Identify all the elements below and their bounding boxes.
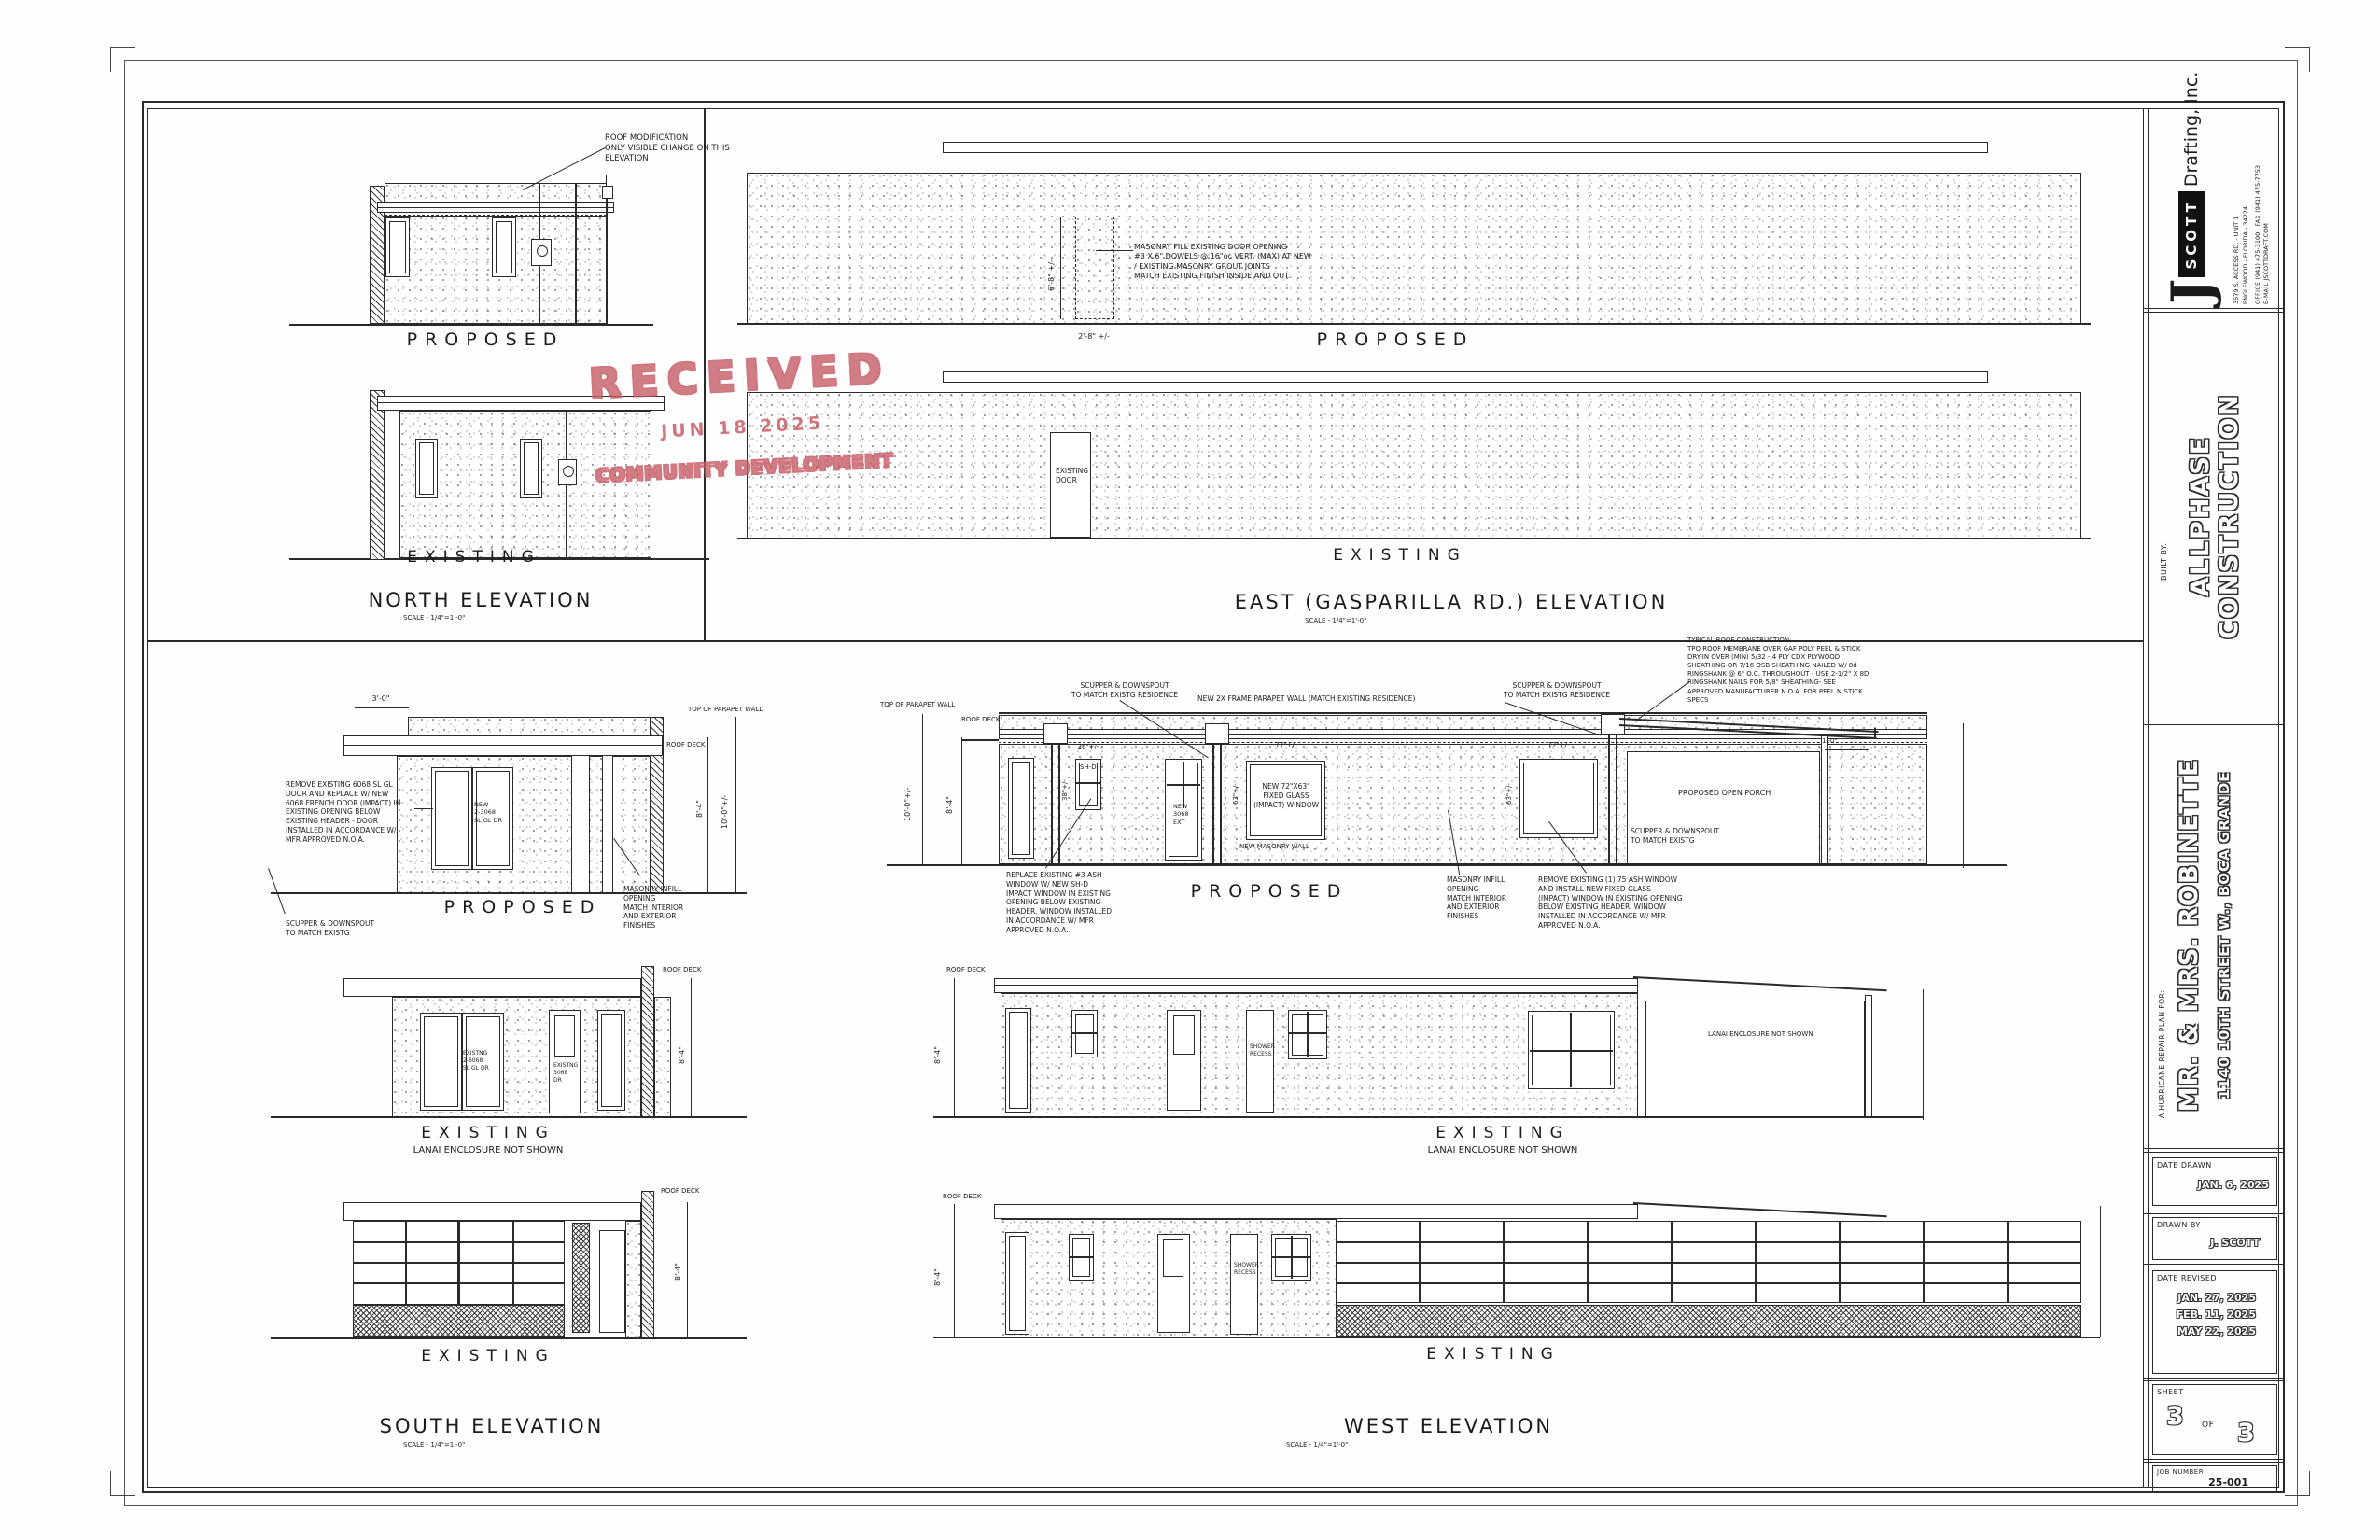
north-existing-window-2 — [520, 439, 542, 498]
stamp-date: JUN 18 2025 — [588, 409, 897, 445]
drawing-sheet: RECEIVED JUN 18 2025 COMMUNITY DEVELOPME… — [0, 0, 2380, 1540]
label-proposed-open-porch: PROPOSED OPEN PORCH — [1678, 789, 1771, 798]
title-south-elevation: SOUTH ELEVATION — [380, 1414, 605, 1439]
west-proposed-downspout3b — [1616, 735, 1617, 864]
west-existing2-roof-slab — [994, 978, 1638, 993]
west-proposed-door1 — [1008, 758, 1034, 859]
west-proposed-downspout3a — [1608, 735, 1610, 864]
tb-sep-6b — [2143, 1380, 2285, 1381]
note-masonry-infill-west: MASONRY INFILL OPENING MATCH INTERIOR AN… — [1447, 875, 1506, 921]
dim-east-door-width: 2'-8" +/- — [1078, 332, 1110, 342]
titleblock-divider-1 — [2143, 108, 2144, 1488]
tb-builtby-section: BUILT BY: ALLPHASE CONSTRUCTION — [2149, 312, 2279, 721]
west-existing3-window1-rail — [1069, 1256, 1094, 1258]
south-existing2-ground — [271, 1116, 747, 1118]
west-existing3-rail-1 — [1337, 1241, 2081, 1243]
west-proposed-downspout2b — [1220, 744, 1222, 864]
south-dim-overhang-line — [355, 707, 409, 708]
south-existing2-sidelight — [597, 1010, 625, 1111]
label-roof-deck-west3: ROOF DECK — [943, 1193, 981, 1201]
tb-sep-2a — [2143, 721, 2285, 721]
west-existing2-bigwin-rail — [1530, 1050, 1613, 1052]
revision-1: JAN. 27, 2025 — [2177, 1292, 2256, 1304]
built-by-label: BUILT BY: — [2160, 542, 2168, 581]
label-shower-recess1: SHOWER RECESS — [1250, 1043, 1275, 1058]
east-existing-roof-cap — [943, 371, 1988, 383]
south-existing2-wall-right — [654, 997, 671, 1118]
south-existing3-roof-line — [343, 1211, 641, 1211]
west-existing3-dim-line — [954, 1204, 955, 1338]
label-existing-north: EXISTING — [407, 547, 540, 567]
west-proposed-shd-rail — [1075, 782, 1101, 784]
west-existing2-window2-mullion — [1307, 1012, 1309, 1057]
firm-office-label: OFFICE — [2255, 282, 2261, 304]
tb-job-box: JOB NUMBER 25-001 — [2152, 1465, 2277, 1491]
tb-firm-section: J SCOTT Drafting, Inc. 3579 S. ACCESS RD… — [2149, 108, 2279, 308]
north-proposed-conduit-up — [539, 183, 540, 239]
south-proposed-parapet — [408, 717, 651, 736]
note-roof-modification: ROOF MODIFICATION ONLY VISIBLE CHANGE ON… — [605, 133, 735, 164]
south-existing3-dim-line — [687, 1202, 688, 1338]
west-existing2-window1 — [1071, 1010, 1098, 1057]
note-masonry-fill-door: MASONRY FILL EXISTING DOOR OPENING #3 X … — [1134, 243, 1349, 282]
tb-sep-6a — [2143, 1378, 2285, 1379]
east-proposed-roof-cap — [943, 142, 1988, 153]
north-proposed-parapet — [385, 183, 607, 203]
tb-sep-4a — [2143, 1211, 2285, 1211]
south-existing3-pilaster — [641, 1191, 654, 1338]
south-existing3-mullion-3 — [512, 1221, 514, 1305]
dim-shd-height: 38"+/- — [1061, 779, 1070, 801]
west-existing3-mullion-7 — [1923, 1221, 1925, 1303]
label-roof-deck-south2: ROOF DECK — [663, 966, 701, 974]
west-existing3-mullion-4 — [1671, 1221, 1673, 1303]
tb-sep-1a — [2143, 308, 2285, 309]
tb-sep-4b — [2143, 1213, 2285, 1214]
north-proposed-downspout-head — [602, 186, 613, 199]
east-dim-line-horizontal — [1060, 329, 1126, 329]
south-existing2-dim-line — [691, 978, 692, 1118]
west-existing3-ground — [933, 1337, 2100, 1338]
dim-east-door-height: 6'-8" +/- — [1047, 259, 1057, 291]
corner-tick-bl — [110, 1471, 135, 1496]
project-address: 1140 10TH STREET W., BOCA GRANDE — [2216, 724, 2233, 1146]
west-proposed-downspout2a — [1212, 744, 1214, 864]
label-proposed-north: PROPOSED — [407, 329, 565, 352]
west-existing2-shower-recess — [1246, 1010, 1274, 1113]
north-proposed-window-1 — [385, 217, 410, 277]
label-existing-east: EXISTING — [1333, 545, 1466, 566]
note-masonry-infill-south: MASONRY INFILL OPENING MATCH INTERIOR AN… — [623, 885, 683, 931]
west-existing2-door2-lite — [1173, 1015, 1195, 1055]
south-existing2-door-lite — [554, 1015, 575, 1057]
built-by-value: ALLPHASE CONSTRUCTION — [2186, 312, 2244, 721]
dim-south-8-4: 8'-4" — [695, 800, 705, 818]
dim-west3-8-4: 8'-4" — [933, 1268, 943, 1286]
south-existing3-wall-bit — [625, 1221, 641, 1338]
south-existing2-pilaster — [641, 966, 654, 1117]
west-existing3-kick-panel — [1337, 1305, 2081, 1337]
label-top-of-parapet-west: TOP OF PARAPET WALL — [880, 701, 955, 709]
date-drawn-value: JAN. 6, 2025 — [2198, 1179, 2269, 1191]
west-porch-roof-edge — [1874, 728, 1876, 739]
firm-logo-scott: SCOTT — [2178, 191, 2205, 276]
south-existing2-sldoor-1 — [420, 1013, 462, 1111]
corner-tick-tr — [2285, 47, 2310, 72]
west-existing3-window2-mullion — [1291, 1236, 1293, 1279]
south-existing2-roof-line — [343, 987, 641, 987]
west-existing2-dim-line — [954, 978, 955, 1118]
tb-sep-3b — [2143, 1152, 2285, 1153]
sheet-label: SHEET — [2157, 1388, 2184, 1396]
label-fixed-glass1: NEW 72"X63" FIXED GLASS (IMPACT) WINDOW — [1253, 782, 1319, 809]
west-proposed-fixed-window2 — [1519, 759, 1598, 838]
dim-south3-8-4: 8'-4" — [674, 1263, 683, 1281]
south-existing3-roof-slab — [343, 1202, 641, 1221]
south-proposed-joint-strip-2 — [602, 756, 613, 894]
west-dim-10-0-line — [922, 714, 923, 864]
east-dim-line-vertical — [1060, 217, 1061, 319]
tb-sep-5a — [2143, 1264, 2285, 1265]
south-existing3-door — [599, 1230, 625, 1333]
north-existing-pilaster — [370, 390, 385, 560]
south-existing3-mullion-1 — [405, 1221, 407, 1305]
label-existing-south3: EXISTING — [421, 1346, 554, 1366]
label-existing-west2: EXISTING — [1435, 1123, 1569, 1143]
label-proposed-south: PROPOSED — [444, 896, 602, 919]
north-existing-conduit-up — [566, 411, 567, 459]
dim-fixed2-height: 63"+/- — [1505, 783, 1514, 805]
dim-south-10-0: 10'-0"+/- — [721, 795, 730, 829]
firm-address2: ENGLEWOOD - FLORIDA - 34224 — [2242, 206, 2249, 304]
leader-masonry-fill — [1096, 250, 1133, 251]
dim-west1-10-0: 10'-0"+/- — [903, 788, 913, 821]
west-dim-8-4-line — [961, 737, 962, 864]
firm-email: JSCOTTDRAFT.COM — [2262, 223, 2270, 280]
firm-logo-j: J — [2167, 279, 2216, 304]
north-existing-window-1 — [415, 439, 438, 498]
west-proposed-downspout1a — [1051, 744, 1053, 864]
sheet-of-label: OF — [2202, 1421, 2214, 1430]
west-proposed-ground — [887, 864, 2007, 866]
west-existing3-mullion-8 — [2007, 1221, 2009, 1303]
dim-fixed1-height: 63"+/- — [1232, 783, 1240, 805]
dim-south2-8-4: 8'-4" — [678, 1046, 687, 1064]
south-dim-10-0-line — [735, 717, 736, 894]
tb-project-section: A HURRICANE REPAIR PLAN FOR: MR. & MRS. … — [2149, 724, 2279, 1146]
plan-for-label: A HURRICANE REPAIR PLAN FOR: — [2158, 990, 2166, 1118]
label-existing-west3: EXISTING — [1426, 1344, 1560, 1365]
firm-email-label: E-MAIL — [2263, 283, 2270, 304]
tb-sep-7b — [2143, 1462, 2285, 1463]
north-proposed-downspout-pipe — [606, 199, 608, 324]
scale-south: SCALE - 1/4"=1'-0" — [403, 1441, 465, 1449]
west-porch-outline — [1627, 751, 1820, 864]
west-existing3-right-dim — [2100, 1206, 2101, 1337]
date-revised-label: DATE REVISED — [2157, 1274, 2217, 1282]
label-new-masonry-wall: NEW MASONRY WALL — [1239, 843, 1309, 851]
dim-shd-width: 26"+/- — [1078, 743, 1099, 751]
west-existing3-mullion-2 — [1503, 1221, 1505, 1303]
corner-tick-tl — [110, 47, 135, 72]
west-porch-post — [1821, 735, 1828, 864]
west-proposed-right-dim — [1963, 723, 1964, 868]
title-west-elevation: WEST ELEVATION — [1344, 1414, 1553, 1439]
label-shower-recess2: SHOWER RECESS — [1234, 1262, 1259, 1277]
tb-date-drawn-box: DATE DRAWN JAN. 6, 2025 — [2152, 1157, 2277, 1206]
north-proposed-joint — [575, 183, 577, 324]
north-proposed-meter-dial — [537, 245, 548, 257]
west-proposed-scupper2 — [1205, 723, 1229, 744]
north-proposed-conduit-down — [539, 266, 540, 324]
south-proposed-roof-line — [343, 745, 663, 746]
south-proposed-door-panel-1 — [431, 767, 472, 870]
tb-drawn-by-box: DRAWN BY J. SCOTT — [2152, 1217, 2277, 1260]
client-name: MR. & MRS. ROBINETTE — [2175, 724, 2204, 1146]
tb-sep-7a — [2143, 1459, 2285, 1460]
note-typical-roof: TYPICAL ROOF CONSTRUCTION: TPO ROOF MEMB… — [1687, 637, 1907, 705]
east-proposed-fill-door — [1075, 217, 1114, 319]
dim-south-overhang: 3'-0" — [372, 694, 390, 704]
east-existing-wall — [747, 392, 2081, 539]
note-scupper-west1: SCUPPER & DOWNSPOUT TO MATCH EXISTG RESI… — [1071, 681, 1178, 700]
south-existing2-roof-slab — [343, 978, 641, 997]
firm-logo-name: Drafting, Inc. — [2181, 72, 2202, 187]
corner-tick-br — [2285, 1471, 2310, 1496]
label-proposed-east: PROPOSED — [1317, 329, 1475, 352]
west-existing3-roof-line — [994, 1211, 1638, 1211]
leader-remove-door — [414, 808, 433, 809]
firm-fax: (941) 475-7753 — [2254, 165, 2261, 213]
south-existing3-mullion-2 — [457, 1221, 460, 1305]
note-scupper-west2: SCUPPER & DOWNSPOUT TO MATCH EXISTG RESI… — [1504, 681, 1610, 700]
west-existing2-right-dim — [1923, 989, 1924, 1120]
label-existing-south2: EXISTING — [421, 1123, 554, 1143]
label-new-3068-ext: NEW 3068 EXT — [1173, 803, 1189, 826]
west-porch-dim-line — [1825, 749, 1869, 750]
east-proposed-ground — [737, 323, 2091, 325]
south-existing3-ground — [271, 1337, 747, 1339]
job-number-value: 25-001 — [2208, 1477, 2248, 1489]
dim-fixed2-width: 77"+/- — [1548, 741, 1570, 749]
note-remove-6068-door: REMOVE EXISTING 6068 SL GL DOOR AND REPL… — [286, 780, 412, 844]
south-existing3-kick-panel — [353, 1305, 565, 1337]
note-scupper-west3: SCUPPER & DOWNSPOUT TO MATCH EXISTG — [1631, 827, 1719, 846]
label-new-door-south: NEW 2-3068 SL GL DR — [474, 801, 502, 824]
title-east-elevation: EAST (GASPARILLA RD.) ELEVATION — [1235, 590, 1669, 615]
north-proposed-window-2 — [492, 217, 516, 277]
west-existing3-shower-recess — [1230, 1234, 1258, 1335]
west-existing3-door2-lite — [1163, 1239, 1183, 1277]
west-existing3-roof-slab — [994, 1204, 1638, 1219]
firm-fax-label: FAX — [2255, 215, 2261, 227]
north-existing-meter-dial — [563, 466, 574, 477]
west-existing3-rail-3 — [1337, 1282, 2081, 1284]
east-existing-door — [1050, 432, 1091, 538]
dim-west2-8-4: 8'-4" — [933, 1046, 943, 1064]
east-proposed-wall — [747, 173, 2081, 324]
date-drawn-label: DATE DRAWN — [2157, 1161, 2212, 1169]
title-north-elevation: NORTH ELEVATION — [369, 588, 594, 613]
west-existing2-door1 — [1005, 1008, 1031, 1113]
west-existing3-rail-2 — [1337, 1262, 2081, 1264]
tb-date-revised-box: DATE REVISED JAN. 27, 2025 FEB. 11, 2025… — [2152, 1270, 2277, 1374]
scale-west: SCALE - 1/4"=1'-0" — [1286, 1441, 1348, 1449]
revision-3: MAY 22, 2025 — [2177, 1325, 2256, 1337]
west-proposed-door2-rail — [1167, 784, 1200, 786]
scale-east: SCALE - 1/4"=1'-0" — [1305, 617, 1366, 625]
west-proposed-scupper1 — [1043, 723, 1068, 744]
tb-sheet-box: SHEET 3 OF 3 — [2152, 1384, 2277, 1455]
label-new-parapet-wall: NEW 2X FRAME PARAPET WALL (MATCH EXISTIN… — [1197, 694, 1415, 704]
note-remove-75-ash: REMOVE EXISTING (1) 75 ASH WINDOW AND IN… — [1538, 875, 1687, 931]
drawn-by-value: J. SCOTT — [2210, 1237, 2260, 1249]
label-top-of-parapet-south: TOP OF PARAPET WALL — [688, 706, 763, 714]
tb-sep-5b — [2143, 1267, 2285, 1267]
scale-north: SCALE - 1/4"=1'-0" — [403, 614, 465, 623]
west-existing2-roof-line — [994, 985, 1638, 986]
north-existing-conduit-down — [566, 485, 567, 558]
label-lanai-porch: LANAI ENCLOSURE NOT SHOWN — [1708, 1030, 1813, 1039]
west-existing2-porch-post — [1865, 995, 1872, 1117]
west-existing3-mullion-3 — [1587, 1221, 1589, 1303]
note-scupper-south: SCUPPER & DOWNSPOUT TO MATCH EXISTG — [286, 919, 374, 938]
tb-sep-3a — [2143, 1148, 2285, 1149]
label-existing-3068-door: EXISTNG 3068 DR — [553, 1062, 578, 1084]
north-proposed-ground — [289, 324, 653, 326]
firm-address1: 3579 S. ACCESS RD. - UNIT 1 — [2233, 217, 2240, 304]
north-proposed-fascia-line — [377, 207, 614, 208]
firm-office: (941) 475-3100 — [2254, 232, 2261, 280]
label-roof-deck-west2: ROOF DECK — [946, 966, 985, 974]
west-existing2-porch-outline — [1645, 1001, 1865, 1117]
label-roof-deck-west1: ROOF DECK — [961, 716, 1000, 724]
east-existing-ground — [737, 538, 2091, 539]
west-existing3-mullion-6 — [1839, 1221, 1841, 1303]
dim-west1-8-4: 8'-4" — [945, 796, 955, 814]
received-stamp: RECEIVED JUN 18 2025 COMMUNITY DEVELOPME… — [585, 344, 900, 486]
west-proposed-roofdeck-step — [961, 739, 999, 741]
west-existing3-door1 — [1005, 1232, 1029, 1335]
label-existing-slgl-door: EXISTNG 2-6068 SL GL DR — [463, 1050, 489, 1071]
label-roof-deck-south3: ROOF DECK — [661, 1187, 699, 1196]
south-proposed-joint-strip-1 — [571, 756, 590, 894]
west-existing3-mullion-5 — [1755, 1221, 1757, 1303]
dim-fixed1-width: 77"+/- — [1276, 741, 1297, 749]
south-proposed-roof-slab — [343, 735, 663, 756]
west-existing2-window1-rail — [1071, 1032, 1098, 1034]
label-proposed-west: PROPOSED — [1191, 880, 1349, 903]
label-lanai-west2: LANAI ENCLOSURE NOT SHOWN — [1428, 1144, 1578, 1156]
dim-porch-overhang: 1'-0" — [1822, 737, 1838, 746]
label-shd-window: SH-D — [1080, 763, 1097, 772]
note-replace-ash-window: REPLACE EXISTING #3 ASH WINDOW W/ NEW SH… — [1006, 871, 1123, 934]
revision-2: FEB. 11, 2025 — [2177, 1309, 2256, 1321]
job-number-label: JOB NUMBER — [2157, 1468, 2204, 1476]
label-lanai-south2: LANAI ENCLOSURE NOT SHOWN — [413, 1144, 564, 1156]
drawn-by-label: DRAWN BY — [2157, 1221, 2201, 1229]
south-existing3-lattice — [572, 1223, 590, 1333]
south-dim-8-4-line — [707, 737, 708, 894]
west-existing3-mullion-1 — [1419, 1221, 1421, 1303]
west-proposed-dashline — [999, 742, 1927, 743]
label-existing-door: EXISTING DOOR — [1056, 467, 1088, 485]
west-existing2-ground — [933, 1116, 1923, 1118]
sheet-number: 3 — [2166, 1402, 2184, 1431]
sheet-total: 3 — [2237, 1419, 2255, 1448]
label-roof-deck-south1: ROOF DECK — [666, 741, 705, 749]
